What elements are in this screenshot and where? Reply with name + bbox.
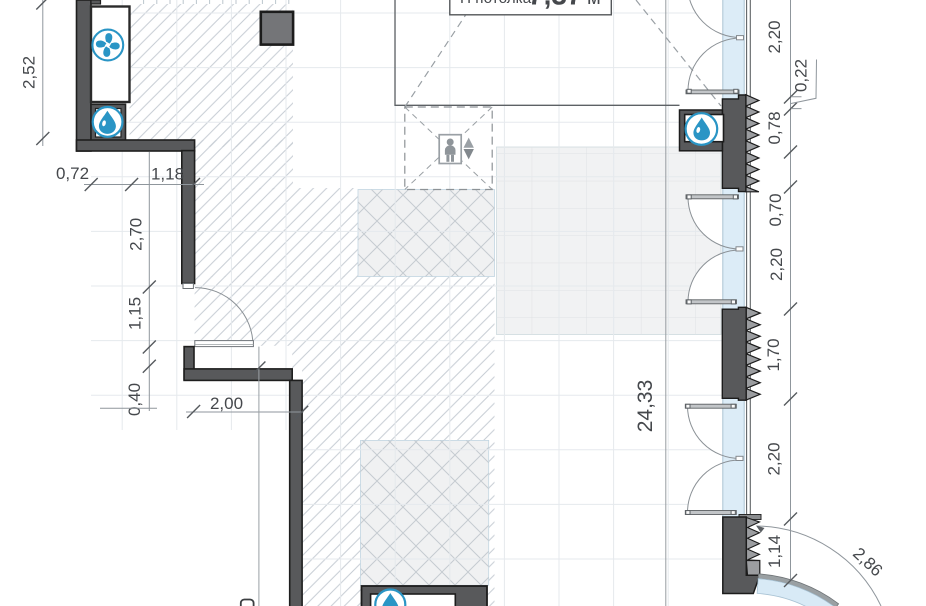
svg-text:7,37: 7,37 [528,0,583,11]
svg-text:1,18: 1,18 [151,165,184,184]
svg-text:2,52: 2,52 [20,56,39,89]
svg-text:0,22: 0,22 [792,59,811,92]
svg-text:1,14: 1,14 [765,535,784,568]
svg-text:2,70: 2,70 [127,218,146,251]
svg-text:1,70: 1,70 [764,338,783,371]
svg-text:2,20: 2,20 [765,442,784,475]
svg-text:0,70: 0,70 [766,193,785,226]
svg-text:2,20: 2,20 [767,248,786,281]
svg-text:м: м [587,0,601,9]
svg-text:2,20: 2,20 [765,20,784,53]
svg-text:0,78: 0,78 [765,111,784,144]
svg-text:0,40: 0,40 [125,383,144,416]
svg-text:1,15: 1,15 [126,297,145,330]
svg-text:2,00: 2,00 [210,394,243,413]
svg-text:24,33: 24,33 [634,380,657,433]
svg-text:0,72: 0,72 [56,164,89,183]
svg-text:Н потолка: Н потолка [460,0,532,7]
